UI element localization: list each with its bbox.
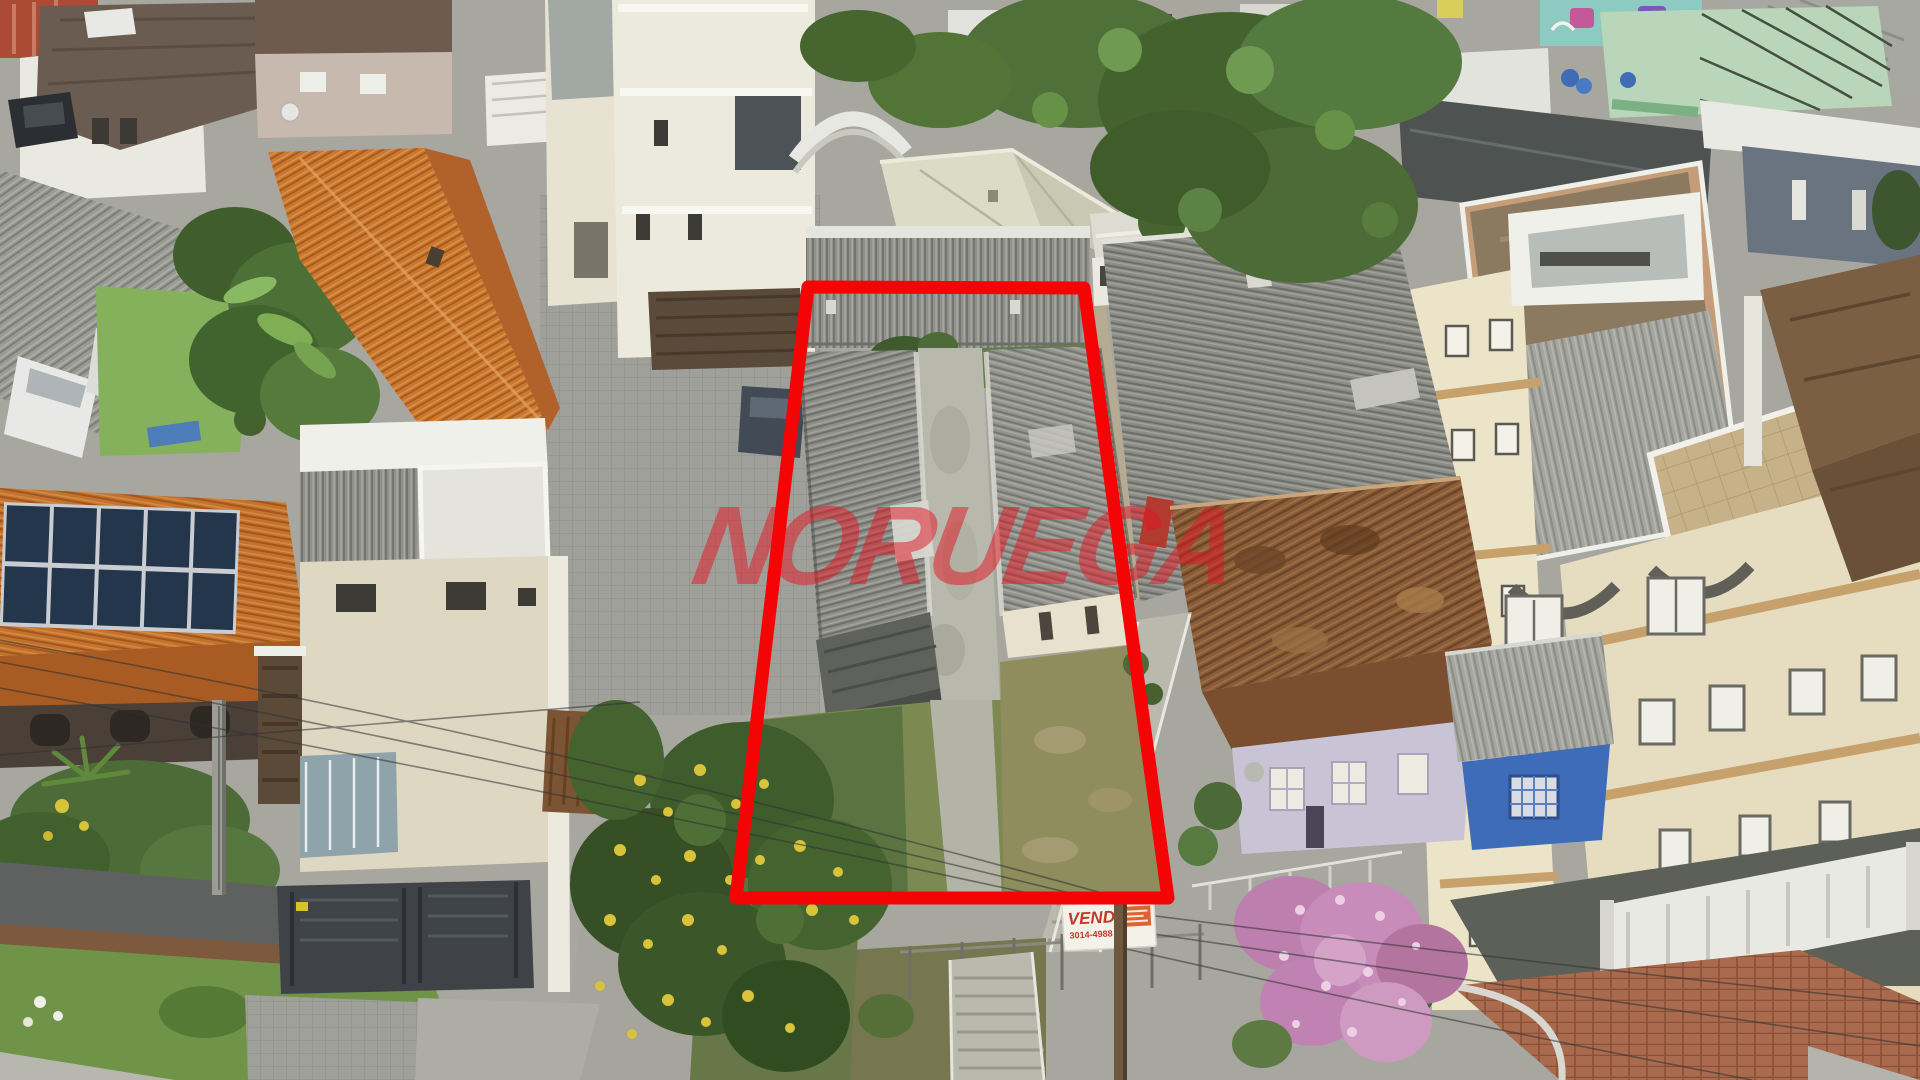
taupe-house <box>255 52 452 138</box>
metal-gates <box>277 880 534 994</box>
gate-sign <box>296 902 308 911</box>
stone-panel <box>574 222 608 278</box>
wooden-pole <box>1114 893 1127 1080</box>
front-steps <box>950 952 1045 1080</box>
glass-balcony <box>300 752 398 858</box>
satellite-dish <box>1244 762 1264 782</box>
driveway-pavers <box>245 995 418 1080</box>
aerial-photo: VENDE 3014-4988 NORUEGA <box>0 0 1920 1080</box>
mint-warehouse <box>1600 6 1892 118</box>
parked-car-white <box>84 8 136 38</box>
blue-shed <box>1445 632 1614 850</box>
aerial-photo-canvas: VENDE 3014-4988 NORUEGA <box>0 0 1920 1080</box>
glass-box <box>735 96 801 170</box>
solar-panel-array <box>0 502 240 634</box>
satellite-dish <box>281 103 299 121</box>
taupe-house-roof <box>255 0 452 56</box>
vende-sign: VENDE 3014-4988 <box>1062 900 1156 951</box>
